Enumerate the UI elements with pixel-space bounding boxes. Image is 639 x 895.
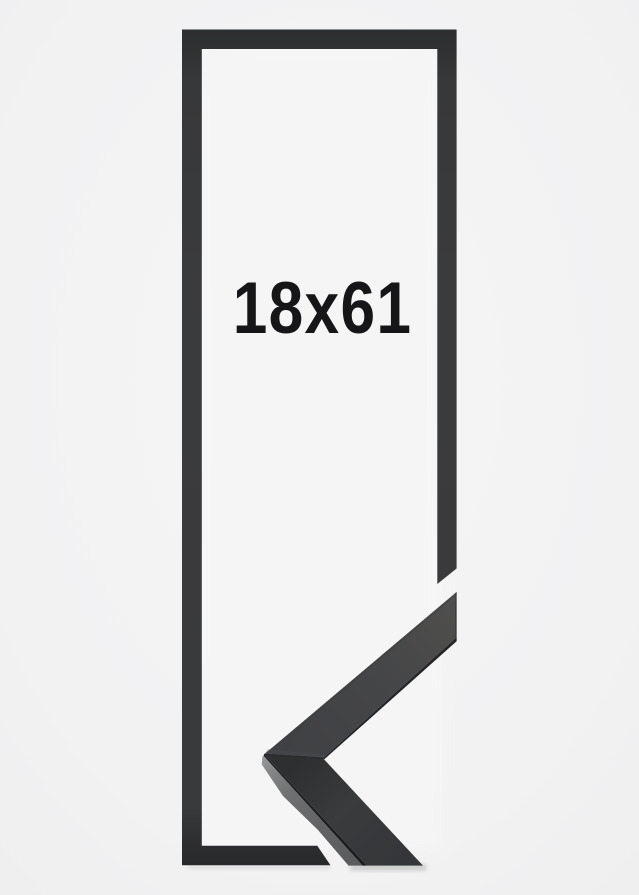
svg-text:18x61: 18x61: [233, 268, 413, 349]
